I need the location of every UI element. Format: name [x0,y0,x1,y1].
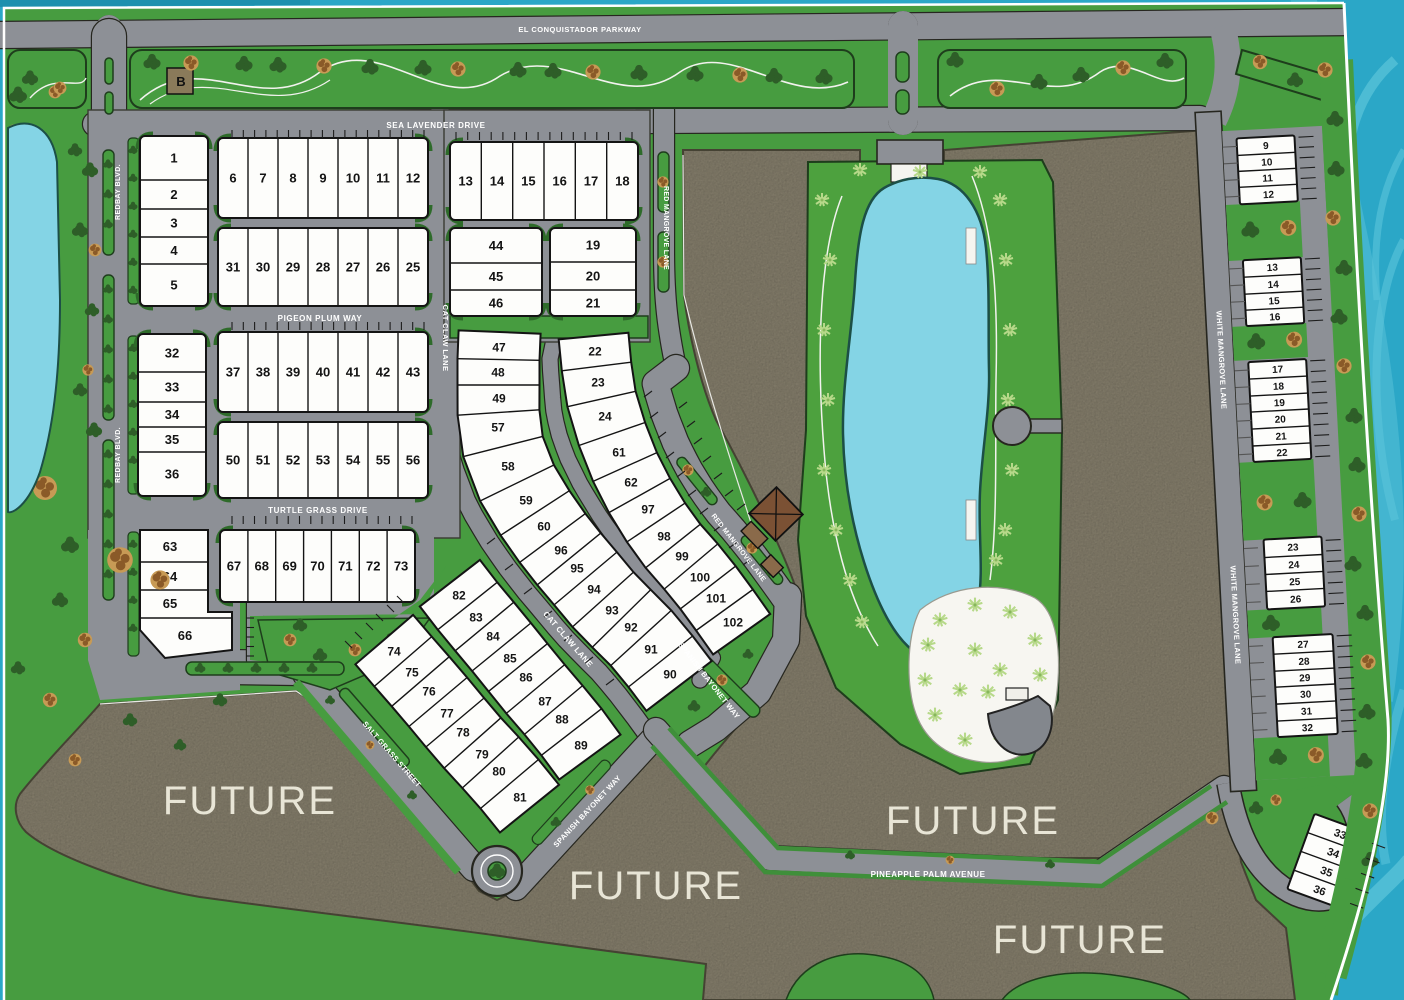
svg-text:97: 97 [641,502,655,516]
svg-text:48: 48 [491,365,505,379]
svg-text:PIGEON PLUM WAY: PIGEON PLUM WAY [278,314,363,323]
svg-text:32: 32 [165,346,179,361]
svg-text:13: 13 [1266,263,1278,275]
svg-text:15: 15 [1268,296,1280,308]
svg-text:85: 85 [503,651,517,665]
svg-text:24: 24 [1288,560,1300,572]
svg-text:76: 76 [422,684,436,698]
svg-text:77: 77 [440,706,454,720]
svg-text:81: 81 [513,790,527,804]
svg-text:34: 34 [165,407,180,422]
svg-text:25: 25 [406,260,420,275]
svg-text:67: 67 [227,559,241,574]
svg-text:19: 19 [586,238,600,253]
svg-text:58: 58 [501,459,515,473]
svg-text:15: 15 [521,174,535,189]
svg-text:11: 11 [1262,173,1274,185]
svg-text:27: 27 [1297,639,1309,651]
svg-text:91: 91 [644,642,658,656]
svg-text:101: 101 [706,591,726,605]
svg-text:82: 82 [452,588,466,602]
svg-text:12: 12 [406,171,420,186]
svg-text:19: 19 [1274,398,1286,410]
svg-text:35: 35 [165,432,179,447]
svg-text:22: 22 [1276,448,1288,460]
svg-text:87: 87 [538,694,552,708]
svg-text:49: 49 [492,391,506,405]
svg-text:CAT CLAW LANE: CAT CLAW LANE [441,305,450,372]
svg-text:REDBAY BLVD.: REDBAY BLVD. [115,427,122,483]
svg-text:92: 92 [624,620,638,634]
svg-text:28: 28 [316,260,330,275]
svg-text:39: 39 [286,365,300,380]
svg-text:65: 65 [163,596,177,611]
svg-text:FUTURE: FUTURE [886,799,1060,843]
svg-text:46: 46 [489,296,503,311]
svg-text:59: 59 [519,493,533,507]
svg-text:26: 26 [1290,594,1302,606]
svg-text:5: 5 [170,278,177,293]
svg-text:78: 78 [456,725,470,739]
svg-text:11: 11 [376,171,390,186]
svg-text:18: 18 [1273,381,1285,393]
svg-text:86: 86 [519,670,533,684]
svg-text:RED MANGROVE LANE: RED MANGROVE LANE [662,186,669,270]
svg-text:18: 18 [615,174,629,189]
svg-text:B: B [176,74,185,89]
svg-text:SEA LAVENDER DRIVE: SEA LAVENDER DRIVE [386,121,485,130]
svg-text:10: 10 [346,171,360,186]
svg-text:88: 88 [555,712,569,726]
svg-text:21: 21 [1275,431,1287,443]
svg-text:94: 94 [587,582,601,596]
svg-text:38: 38 [256,365,270,380]
svg-text:41: 41 [346,365,360,380]
svg-text:14: 14 [490,174,505,189]
svg-text:45: 45 [489,269,503,284]
svg-text:96: 96 [554,543,568,557]
svg-text:16: 16 [552,174,566,189]
svg-text:53: 53 [316,453,330,468]
svg-text:10: 10 [1261,157,1273,169]
svg-text:79: 79 [475,747,489,761]
svg-text:90: 90 [663,667,677,681]
svg-text:100: 100 [690,570,710,584]
svg-text:32: 32 [1302,723,1314,735]
svg-text:FUTURE: FUTURE [569,864,743,908]
svg-text:63: 63 [163,539,177,554]
svg-text:70: 70 [310,559,324,574]
svg-text:29: 29 [286,260,300,275]
svg-text:20: 20 [586,269,600,284]
svg-text:24: 24 [598,409,612,423]
svg-text:1: 1 [170,151,177,166]
svg-text:31: 31 [226,260,240,275]
svg-text:REDBAY BLVD.: REDBAY BLVD. [115,164,122,220]
svg-text:57: 57 [491,420,505,434]
svg-text:93: 93 [605,603,619,617]
svg-text:26: 26 [376,260,390,275]
svg-text:20: 20 [1274,414,1286,426]
svg-text:71: 71 [338,559,352,574]
svg-text:21: 21 [586,296,600,311]
svg-text:16: 16 [1269,312,1281,324]
svg-text:40: 40 [316,365,330,380]
svg-text:68: 68 [255,559,269,574]
svg-text:95: 95 [570,561,584,575]
svg-text:89: 89 [574,738,588,752]
svg-text:73: 73 [394,559,408,574]
svg-text:30: 30 [256,260,270,275]
svg-text:2: 2 [170,187,177,202]
svg-text:28: 28 [1298,656,1310,668]
svg-text:50: 50 [226,453,240,468]
svg-text:6: 6 [229,171,236,186]
svg-text:44: 44 [489,238,504,253]
svg-text:29: 29 [1299,673,1311,685]
svg-text:56: 56 [406,453,420,468]
svg-text:54: 54 [346,453,361,468]
svg-text:4: 4 [170,243,178,258]
svg-text:30: 30 [1300,689,1312,701]
svg-text:13: 13 [458,174,472,189]
svg-text:43: 43 [406,365,420,380]
svg-text:37: 37 [226,365,240,380]
svg-text:66: 66 [178,628,192,643]
svg-text:74: 74 [387,644,401,658]
svg-text:47: 47 [492,340,506,354]
svg-text:3: 3 [170,216,177,231]
svg-text:23: 23 [1287,542,1299,554]
svg-text:72: 72 [366,559,380,574]
svg-text:9: 9 [319,171,326,186]
svg-text:17: 17 [1272,364,1284,376]
svg-text:23: 23 [591,375,605,389]
svg-text:FUTURE: FUTURE [163,779,337,823]
svg-text:33: 33 [165,380,179,395]
svg-text:80: 80 [492,764,506,778]
svg-text:TURTLE GRASS DRIVE: TURTLE GRASS DRIVE [268,506,368,515]
svg-text:17: 17 [584,174,598,189]
svg-text:12: 12 [1263,190,1275,202]
svg-text:8: 8 [289,171,296,186]
svg-text:FUTURE: FUTURE [993,918,1167,962]
svg-text:83: 83 [469,610,483,624]
svg-text:14: 14 [1267,279,1279,291]
svg-text:42: 42 [376,365,390,380]
svg-text:7: 7 [259,171,266,186]
svg-text:25: 25 [1289,577,1301,589]
svg-text:69: 69 [282,559,296,574]
svg-text:22: 22 [588,344,602,358]
svg-text:36: 36 [165,467,179,482]
svg-text:52: 52 [286,453,300,468]
svg-text:99: 99 [675,549,689,563]
svg-text:62: 62 [624,475,638,489]
svg-text:EL CONQUISTADOR PARKWAY: EL CONQUISTADOR PARKWAY [518,25,641,34]
svg-text:27: 27 [346,260,360,275]
svg-text:98: 98 [657,529,671,543]
svg-text:51: 51 [256,453,270,468]
svg-text:60: 60 [537,519,551,533]
svg-text:102: 102 [723,615,743,629]
svg-text:84: 84 [486,629,500,643]
svg-text:PINEAPPLE PALM AVENUE: PINEAPPLE PALM AVENUE [871,870,986,879]
svg-text:31: 31 [1301,706,1313,718]
svg-text:75: 75 [405,665,419,679]
svg-text:9: 9 [1263,141,1270,152]
svg-text:55: 55 [376,453,390,468]
svg-text:61: 61 [612,445,626,459]
